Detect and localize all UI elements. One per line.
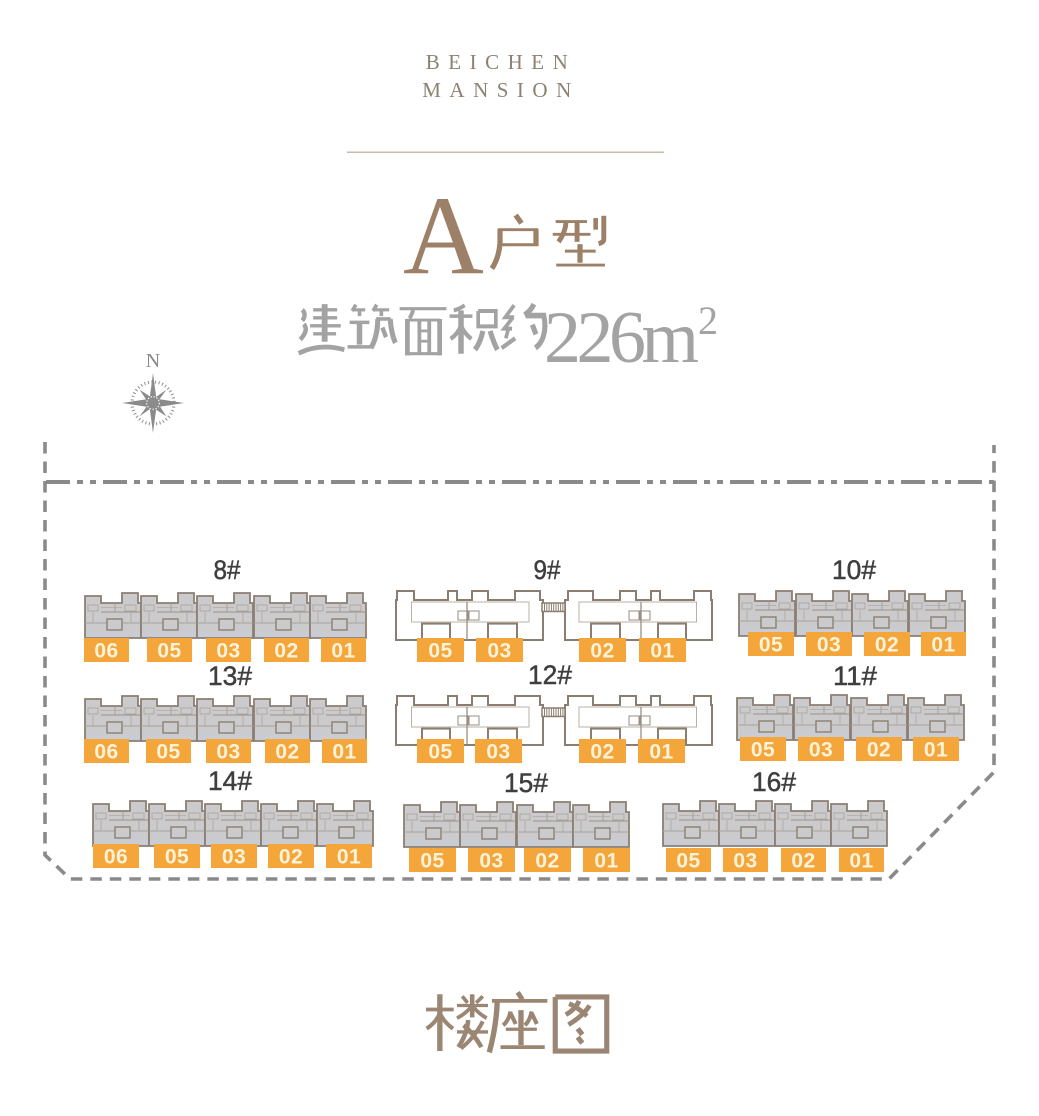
svg-text:05: 05 <box>157 640 181 663</box>
svg-text:06: 06 <box>94 741 118 764</box>
svg-text:03: 03 <box>216 640 240 663</box>
svg-text:MANSION: MANSION <box>422 78 580 102</box>
svg-text:05: 05 <box>751 739 775 762</box>
svg-text:03: 03 <box>809 739 833 762</box>
svg-text:02: 02 <box>535 850 559 873</box>
svg-text:03: 03 <box>817 634 841 657</box>
svg-text:02: 02 <box>867 739 891 762</box>
svg-text:01: 01 <box>337 846 361 869</box>
svg-text:02: 02 <box>274 640 298 663</box>
svg-text:03: 03 <box>487 640 511 663</box>
svg-text:05: 05 <box>428 640 452 663</box>
svg-text:01: 01 <box>924 739 948 762</box>
svg-text:05: 05 <box>759 634 783 657</box>
svg-text:226m: 226m <box>544 297 699 379</box>
svg-text:12#: 12# <box>528 660 572 690</box>
svg-text:01: 01 <box>649 741 673 764</box>
svg-text:15#: 15# <box>504 768 548 798</box>
svg-text:10#: 10# <box>832 555 876 585</box>
svg-text:BEICHEN: BEICHEN <box>426 50 577 74</box>
svg-text:02: 02 <box>791 850 815 873</box>
svg-text:A: A <box>403 174 484 298</box>
svg-text:05: 05 <box>428 741 452 764</box>
svg-text:05: 05 <box>165 846 189 869</box>
svg-text:9#: 9# <box>534 555 561 585</box>
svg-text:05: 05 <box>676 850 700 873</box>
svg-text:05: 05 <box>420 850 444 873</box>
svg-text:02: 02 <box>275 741 299 764</box>
svg-text:01: 01 <box>594 850 618 873</box>
svg-text:01: 01 <box>650 640 674 663</box>
svg-text:01: 01 <box>332 741 356 764</box>
svg-text:2: 2 <box>698 298 718 343</box>
svg-text:14#: 14# <box>208 766 252 796</box>
svg-text:05: 05 <box>156 741 180 764</box>
svg-text:02: 02 <box>590 741 614 764</box>
svg-text:03: 03 <box>479 850 503 873</box>
svg-text:02: 02 <box>875 634 899 657</box>
svg-text:01: 01 <box>931 634 955 657</box>
svg-text:06: 06 <box>94 640 118 663</box>
svg-text:03: 03 <box>222 846 246 869</box>
svg-text:11#: 11# <box>833 661 877 691</box>
svg-text:13#: 13# <box>208 661 252 691</box>
svg-text:03: 03 <box>216 741 240 764</box>
svg-text:01: 01 <box>331 640 355 663</box>
svg-text:16#: 16# <box>752 767 796 797</box>
svg-text:8#: 8# <box>214 555 241 585</box>
svg-text:06: 06 <box>104 846 128 869</box>
svg-text:03: 03 <box>733 850 757 873</box>
svg-text:01: 01 <box>849 850 873 873</box>
svg-text:02: 02 <box>279 846 303 869</box>
svg-text:03: 03 <box>486 741 510 764</box>
svg-text:02: 02 <box>590 640 614 663</box>
svg-text:N: N <box>146 350 160 372</box>
